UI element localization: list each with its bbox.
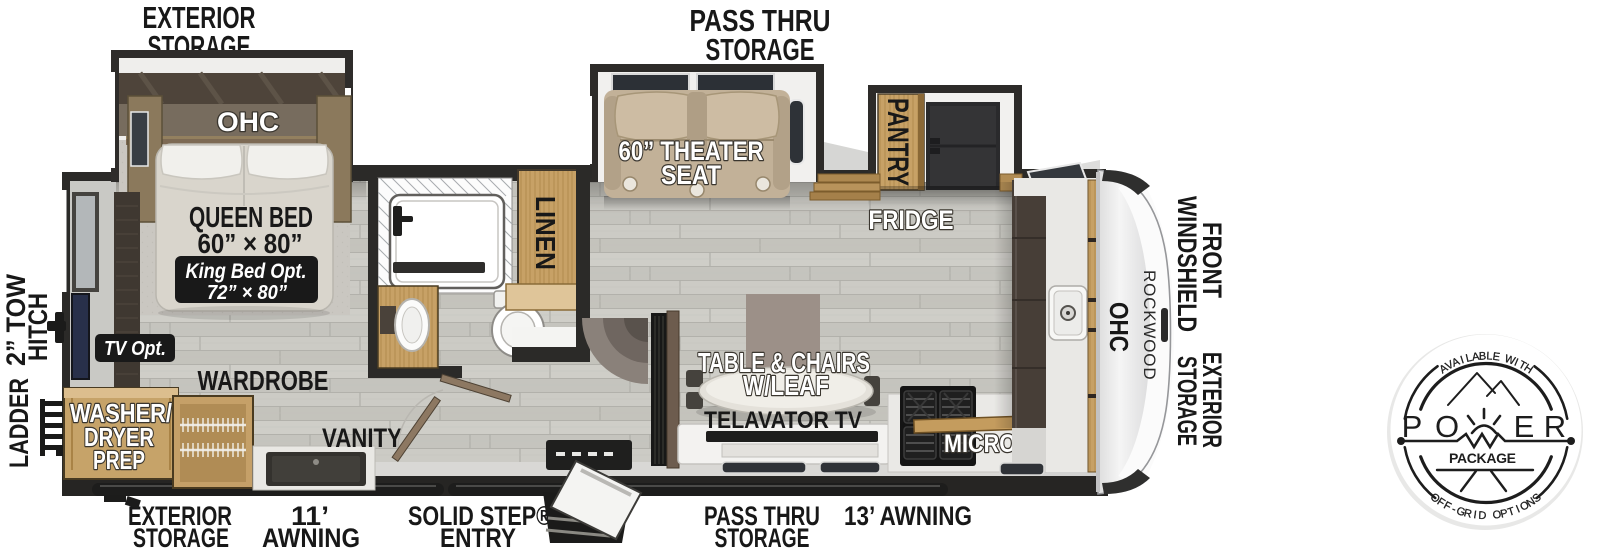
svg-text:13’ AWNING: 13’ AWNING	[844, 501, 972, 531]
svg-text:P: P	[1402, 409, 1423, 444]
svg-text:STORAGE: STORAGE	[715, 523, 810, 549]
svg-text:VANITY: VANITY	[322, 423, 402, 453]
svg-text:PREP: PREP	[93, 445, 145, 475]
svg-text:PACKAGE: PACKAGE	[1449, 450, 1519, 466]
svg-text:OHC: OHC	[1104, 302, 1134, 352]
svg-text:AWNING: AWNING	[262, 523, 360, 549]
svg-text:OHC: OHC	[217, 107, 279, 137]
svg-text:SEAT: SEAT	[661, 160, 721, 190]
svg-text:O: O	[1435, 409, 1459, 444]
svg-text:ROCKWOOD: ROCKWOOD	[1140, 270, 1159, 382]
svg-text:FRIDGE: FRIDGE	[869, 205, 954, 235]
svg-text:WINDSHIELD: WINDSHIELD	[1172, 196, 1202, 332]
svg-text:LINEN: LINEN	[530, 196, 561, 270]
svg-text:STORAGE: STORAGE	[133, 523, 229, 549]
svg-text:King Bed Opt.: King Bed Opt.	[186, 260, 307, 283]
svg-text:60” × 80”: 60” × 80”	[198, 228, 303, 259]
svg-text:STORAGE: STORAGE	[1172, 356, 1202, 446]
svg-text:WARDROBE: WARDROBE	[198, 365, 329, 396]
svg-text:TELAVATOR TV: TELAVATOR TV	[704, 407, 862, 434]
svg-text:ENTRY: ENTRY	[440, 523, 516, 549]
svg-text:LADDER: LADDER	[4, 378, 34, 468]
svg-text:PANTRY: PANTRY	[881, 98, 914, 186]
svg-text:W/LEAF: W/LEAF	[743, 370, 829, 401]
svg-text:72” × 80”: 72” × 80”	[207, 282, 287, 304]
svg-text:MICRO: MICRO	[944, 430, 1016, 458]
svg-text:D: D	[1478, 510, 1487, 522]
svg-text:STORAGE: STORAGE	[706, 32, 815, 67]
svg-text:E: E	[1514, 409, 1535, 444]
svg-text:TV Opt.: TV Opt.	[104, 338, 166, 360]
svg-text:R: R	[1544, 409, 1566, 444]
